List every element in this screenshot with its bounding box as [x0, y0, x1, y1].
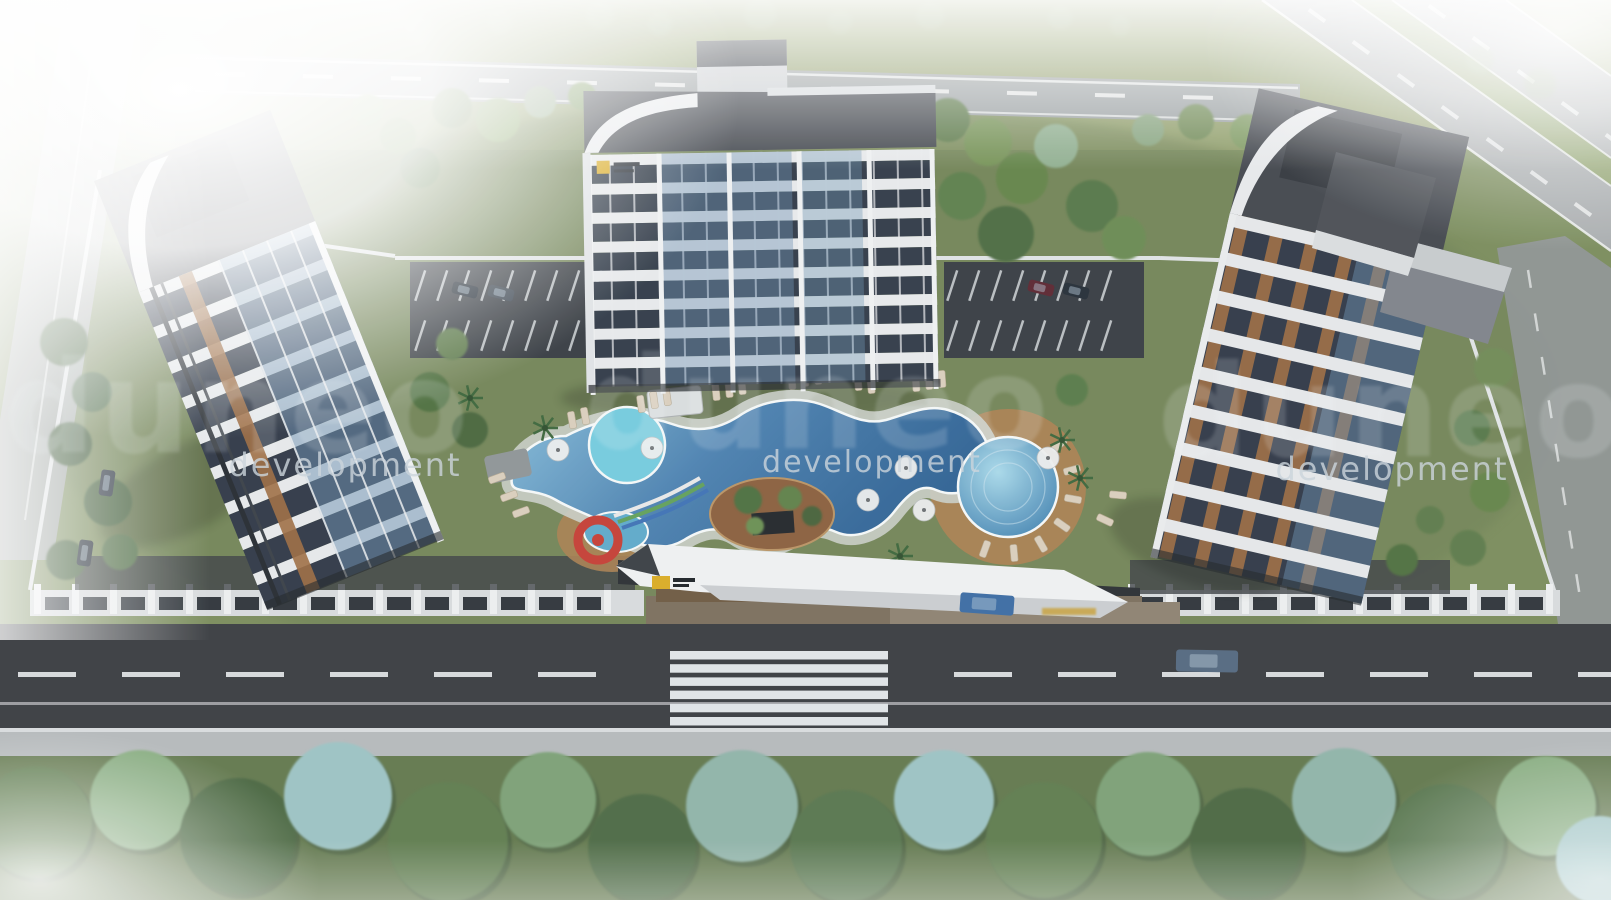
- watermark-caption: development: [762, 445, 982, 480]
- watermark-caption: development: [1275, 450, 1508, 488]
- watermark-caption: development: [228, 446, 461, 484]
- architectural-rendering: duneo development duneo development dune…: [0, 0, 1611, 900]
- aerial-render-scene: duneo development duneo development dune…: [0, 0, 1611, 900]
- watermark-tiles: duneo development duneo development dune…: [4, 330, 1611, 488]
